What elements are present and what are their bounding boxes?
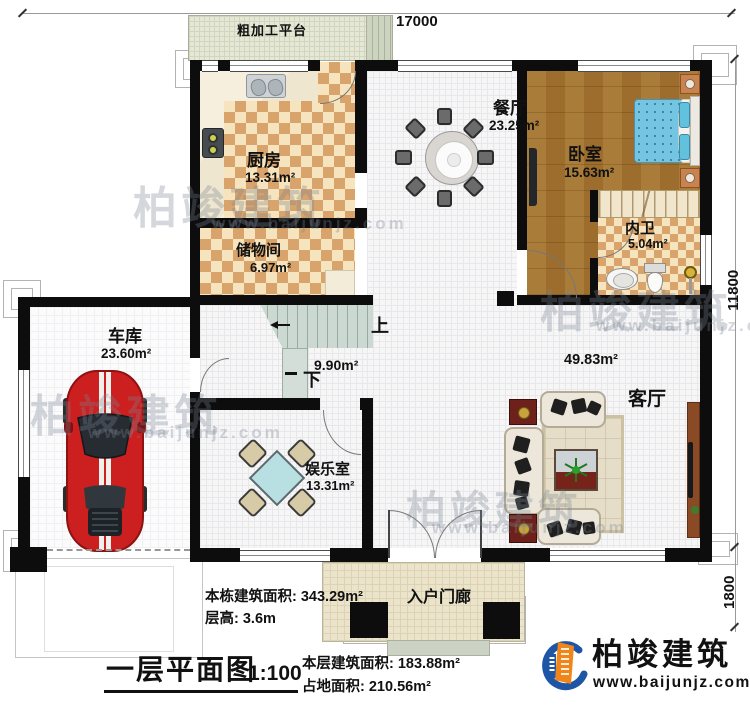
kitchen-area: 13.31m² [245,171,295,186]
footprint-area: 占地面积: 210.56m² [302,680,431,696]
porch-step [387,640,490,656]
bed [634,96,700,166]
coffee-table [554,449,598,491]
dining-label: 餐厅 [493,100,527,119]
dining-area: 23.25m² [489,119,539,134]
plan-scale: 1:100 [248,662,302,685]
storage-label: 储物间 [236,243,281,260]
sofa-bottom [537,508,601,545]
side-table [509,514,537,543]
dining-chair [437,108,452,125]
kitchen-stove [202,128,224,158]
nightstand [680,74,700,94]
dining-chair [437,190,452,207]
structural-column [497,291,514,306]
tv-cabinet [687,402,700,538]
stairs-up-label: 上 [371,317,389,337]
dimension-right-lower-label: 1800 [722,568,739,616]
kitchen-tile [224,101,355,218]
side-table [509,399,537,425]
building-total-area: 本栋建筑面积: 343.29m² [205,590,363,606]
entertainment-area: 13.31m² [306,479,354,493]
kitchen-sink [246,74,286,98]
porch-label: 入户门廊 [407,589,471,607]
stair-landing-mark [285,372,297,375]
porch-pillar [483,602,520,639]
sofa-left [504,427,544,515]
brand-logo-icon [538,634,588,698]
dining-chair [477,150,494,165]
driveway-inner [44,566,174,652]
porch-pillar [350,602,388,638]
brand-name: 柏竣建筑 [592,638,732,672]
bedroom-tv [529,148,537,206]
dimension-line-top [22,13,735,14]
floor-height: 层高: 3.6m [205,612,276,628]
nightstand [680,168,700,188]
car [62,370,148,552]
stair-arrow-head-icon [270,321,278,329]
brand-website: www.baijunjz.com [593,674,750,691]
shower-stem [689,278,692,294]
floor-plan: 17000 11800 1800 粗加工平台 9.90m² 下 上 [0,0,750,706]
garage-label: 车库 [108,328,142,347]
plan-title: 一层平面图 [106,655,256,686]
bathroom-label: 内卫 [625,221,655,238]
dining-chair [395,150,412,165]
bathroom-sink [606,268,638,290]
dimension-right-label: 11800 [726,264,743,316]
stairs-down-label: 下 [303,371,321,391]
storage-area: 6.97m² [250,261,291,275]
living-area: 49.83m² [564,353,618,369]
toilet [644,263,666,295]
bedroom-label: 卧室 [568,146,602,165]
bedroom-area: 15.63m² [564,166,614,181]
stair-direction-arrow [276,324,290,326]
platform-label: 粗加工平台 [237,24,307,38]
platform-steps [366,16,392,60]
garage-door-dashed [47,549,190,551]
title-underline [104,690,298,693]
bathroom-area: 5.04m² [628,238,668,252]
sofa-top [540,391,606,428]
living-label: 客厅 [628,390,666,411]
floor-area: 本层建筑面积: 183.88m² [302,657,460,673]
dimension-top-label: 17000 [396,14,438,31]
garage-area: 23.60m² [101,347,151,362]
storage-appliance [325,270,355,296]
entertainment-label: 娱乐室 [305,462,350,479]
kitchen-label: 厨房 [247,152,281,171]
wardrobe [598,190,700,218]
